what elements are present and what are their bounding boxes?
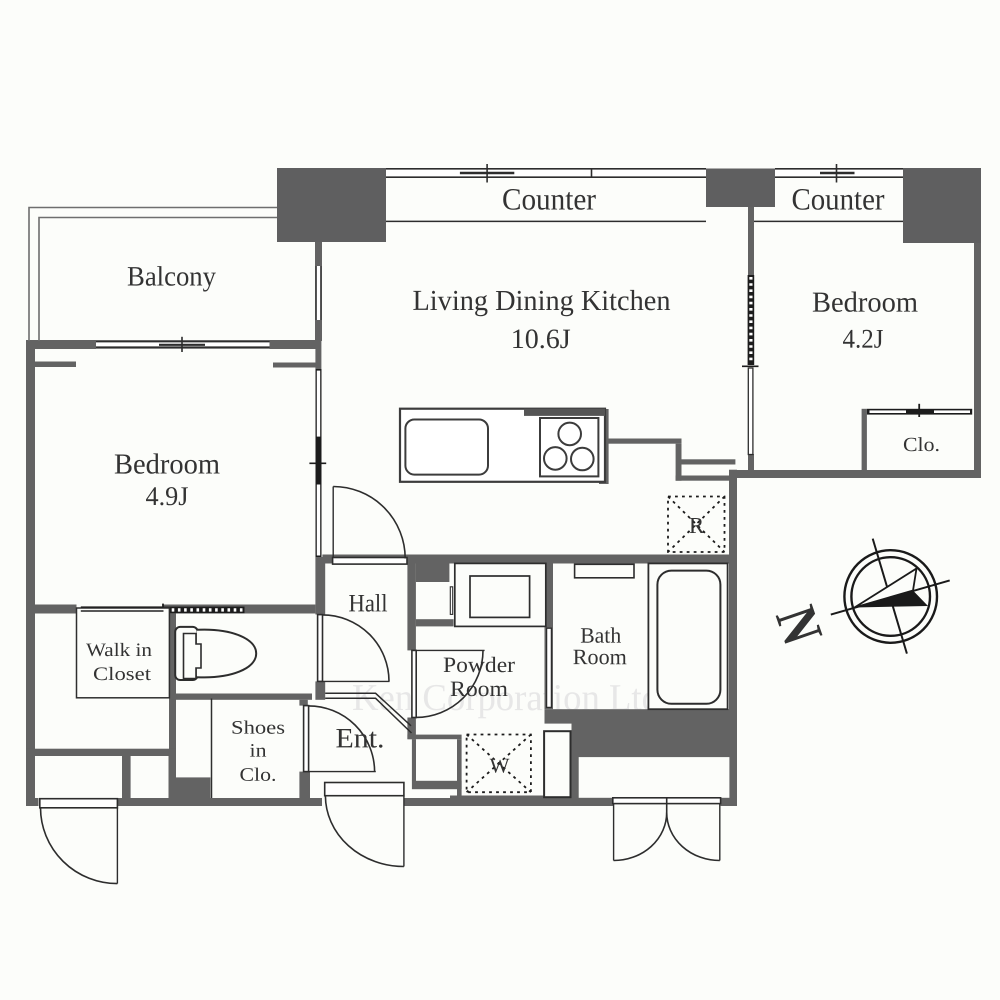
svg-text:Counter: Counter — [791, 181, 885, 216]
svg-text:Balcony: Balcony — [127, 261, 216, 292]
svg-text:Living Dining Kitchen: Living Dining Kitchen — [412, 285, 671, 317]
svg-text:Clo.: Clo. — [903, 434, 940, 456]
svg-text:Closet: Closet — [93, 664, 152, 685]
svg-text:Bedroom: Bedroom — [812, 287, 918, 319]
svg-text:Room: Room — [450, 676, 508, 701]
svg-text:Clo.: Clo. — [239, 765, 276, 786]
svg-text:Room: Room — [573, 644, 627, 669]
svg-text:Counter: Counter — [502, 181, 597, 216]
svg-text:Bedroom: Bedroom — [114, 448, 220, 480]
svg-text:Walk in: Walk in — [86, 640, 153, 661]
svg-text:4.2J: 4.2J — [842, 324, 883, 354]
svg-text:4.9J: 4.9J — [145, 481, 188, 511]
svg-text:Powder: Powder — [443, 652, 516, 677]
svg-text:10.6J: 10.6J — [511, 324, 571, 355]
svg-text:Ent.: Ent. — [335, 723, 384, 754]
svg-text:R: R — [689, 513, 705, 538]
svg-text:W: W — [490, 753, 510, 777]
svg-text:in: in — [249, 741, 267, 762]
svg-text:Hall: Hall — [348, 590, 387, 617]
svg-text:Shoes: Shoes — [231, 718, 285, 739]
